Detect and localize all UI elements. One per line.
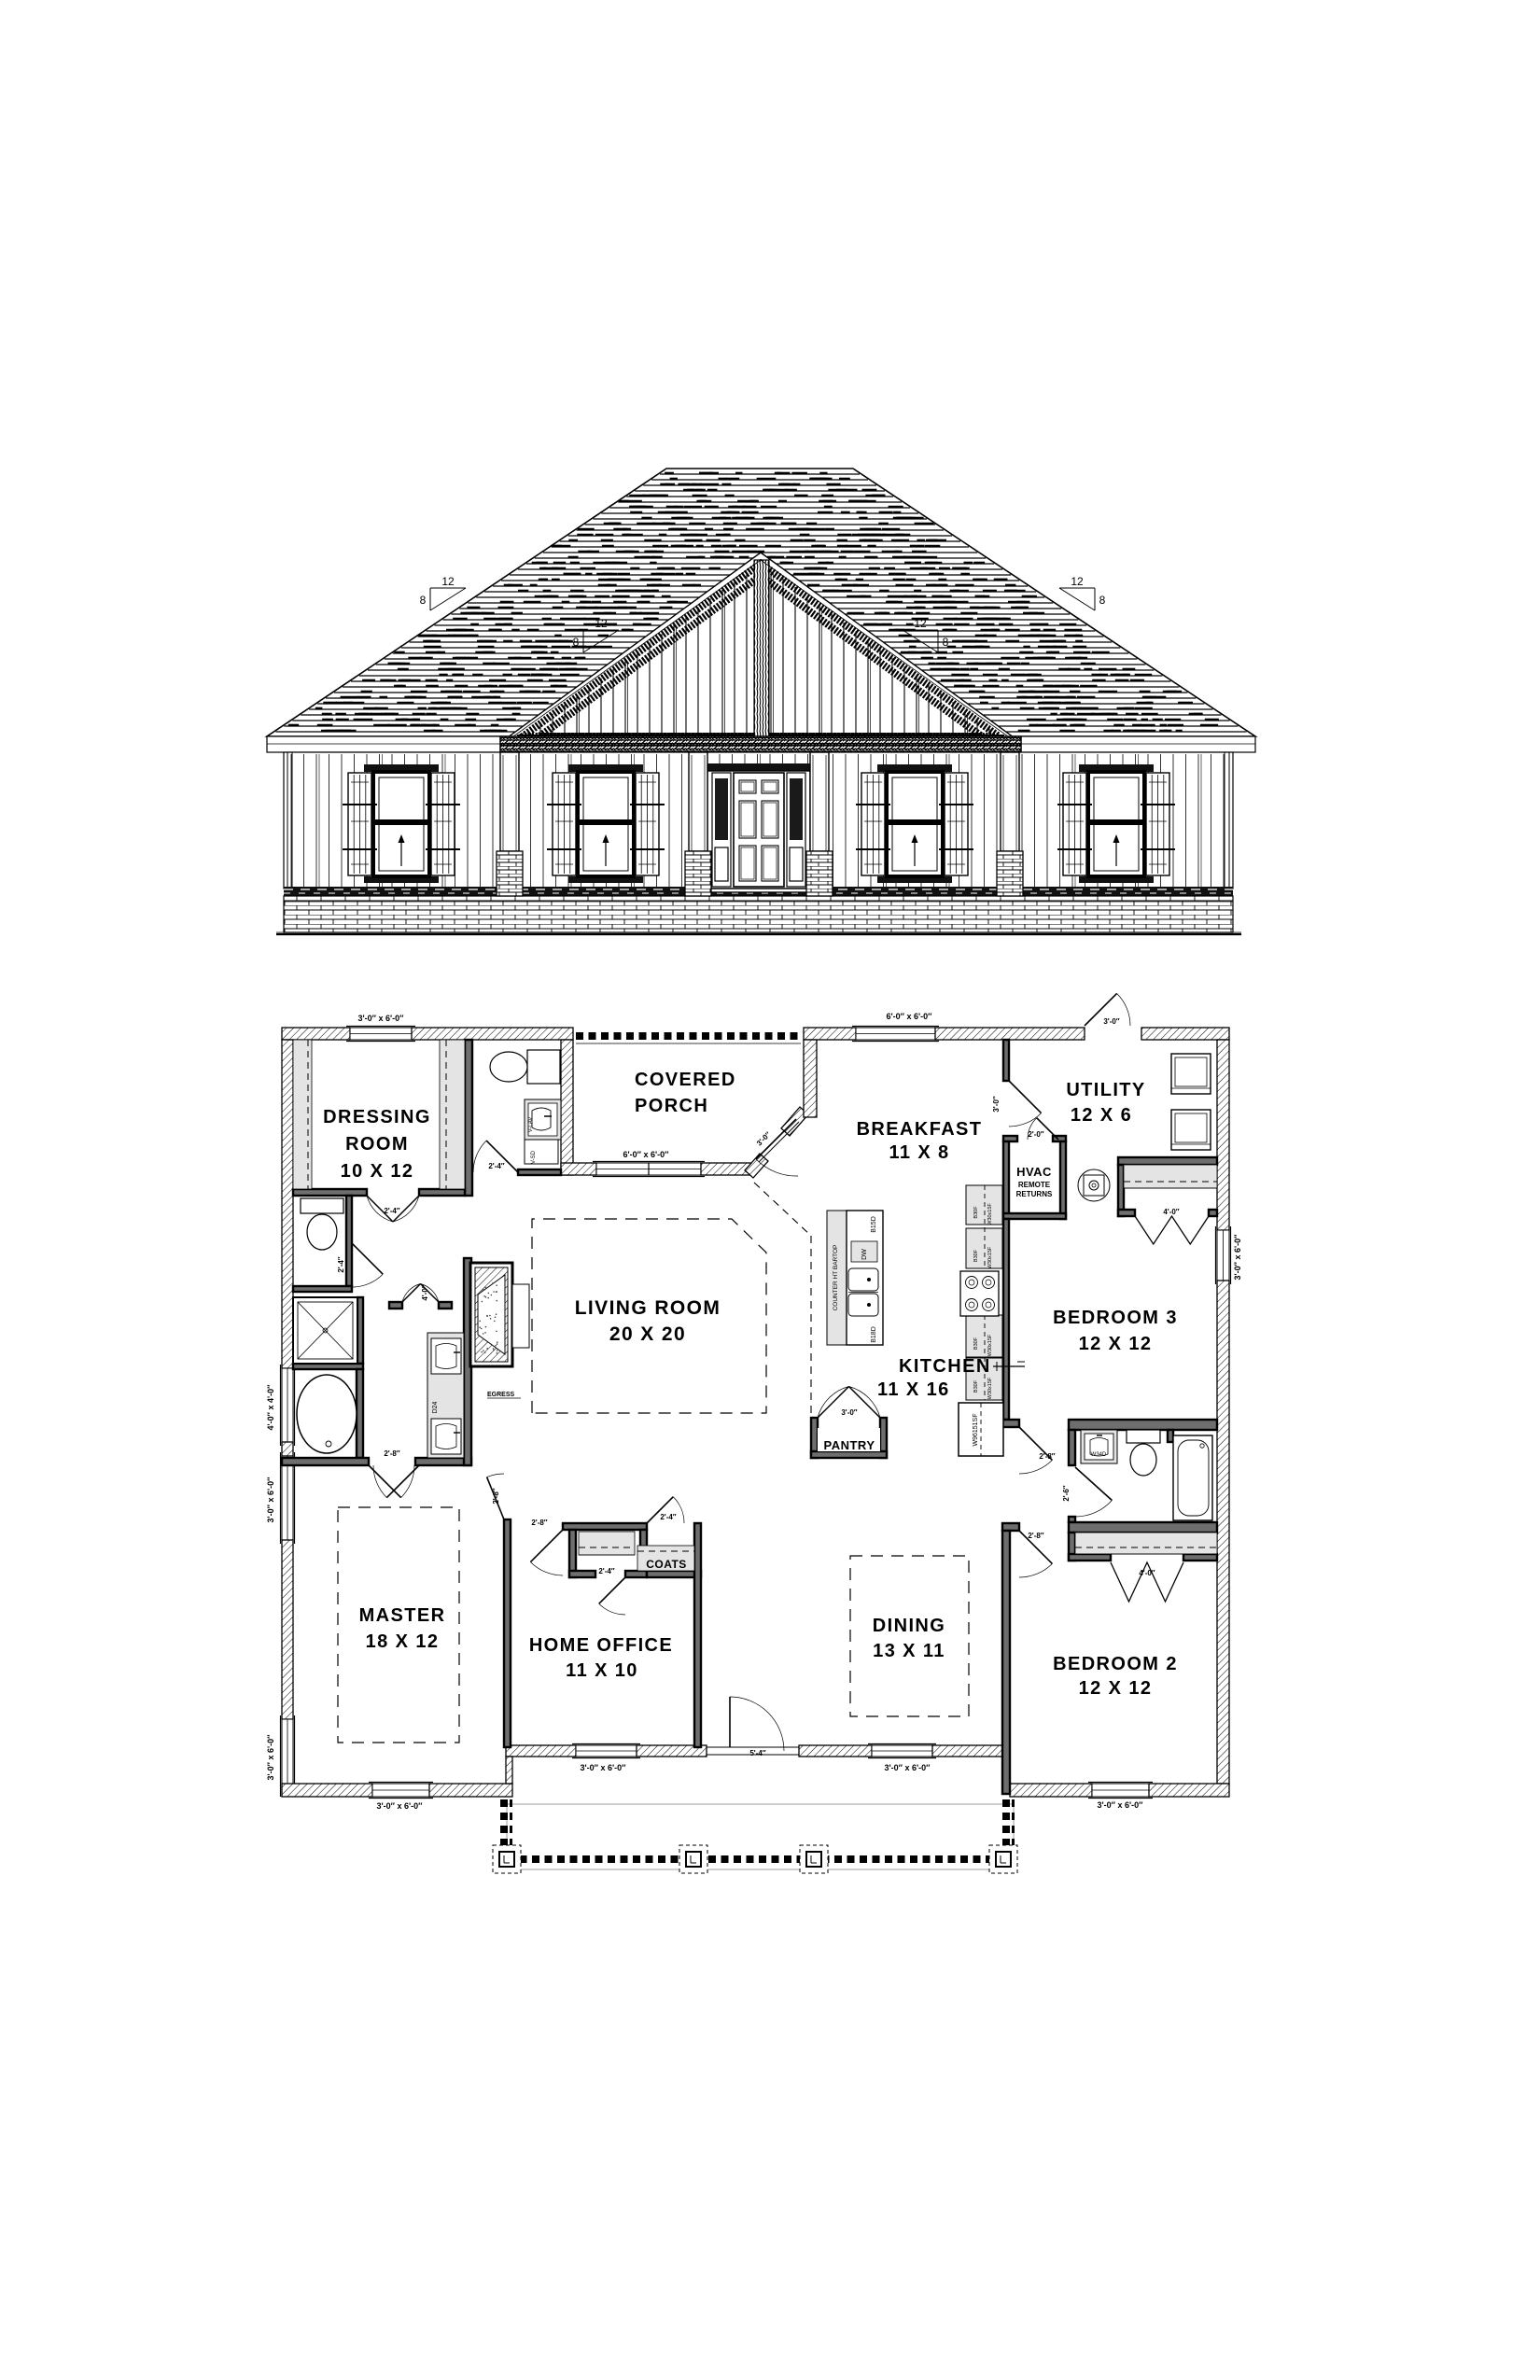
svg-text:12 X 12: 12 X 12 [1079, 1678, 1153, 1699]
svg-text:8: 8 [573, 636, 580, 649]
svg-text:COUNTER HT BARTOP: COUNTER HT BARTOP [833, 1245, 839, 1311]
svg-text:2'-4″: 2'-4″ [384, 1207, 399, 1215]
svg-text:3'-0″ x 6'-0″: 3'-0″ x 6'-0″ [1233, 1234, 1242, 1281]
svg-text:COATS: COATS [646, 1558, 687, 1571]
svg-text:DW: DW [861, 1249, 868, 1260]
svg-text:4'-0″ x 4'-0″: 4'-0″ x 4'-0″ [266, 1384, 275, 1431]
svg-text:8: 8 [943, 636, 949, 649]
svg-text:REMOTE: REMOTE [1018, 1181, 1051, 1189]
svg-text:2'-6″: 2'-6″ [1062, 1485, 1071, 1501]
svg-text:COVERED: COVERED [635, 1070, 736, 1090]
svg-text:MASTER: MASTER [359, 1605, 446, 1626]
svg-text:V-LAV: V-LAV [528, 1117, 534, 1133]
svg-text:W30x15F: W30x15F [987, 1246, 993, 1268]
svg-text:18 X 12: 18 X 12 [366, 1631, 440, 1652]
svg-text:PORCH: PORCH [635, 1096, 708, 1116]
svg-text:PANTRY: PANTRY [824, 1438, 875, 1452]
svg-text:BEDROOM 3: BEDROOM 3 [1053, 1308, 1178, 1328]
svg-text:12: 12 [595, 617, 608, 630]
svg-text:B15D: B15D [871, 1216, 877, 1233]
svg-text:12: 12 [441, 575, 455, 588]
svg-text:RETURNS: RETURNS [1016, 1190, 1053, 1198]
svg-text:W30x15F: W30x15F [987, 1334, 993, 1356]
svg-text:11 X 10: 11 X 10 [566, 1660, 638, 1681]
svg-text:2'-4″: 2'-4″ [660, 1513, 676, 1521]
svg-text:V-SD: V-SD [531, 1150, 537, 1164]
svg-text:5'-4″: 5'-4″ [749, 1749, 765, 1757]
svg-text:W34D: W34D [1091, 1452, 1107, 1458]
svg-text:3'-0″ x 6'-0″: 3'-0″ x 6'-0″ [266, 1477, 275, 1523]
svg-text:4'-0″: 4'-0″ [421, 1284, 429, 1300]
svg-text:12: 12 [1071, 575, 1084, 588]
svg-text:2'-8″: 2'-8″ [1028, 1532, 1043, 1540]
svg-text:20 X 20: 20 X 20 [609, 1323, 686, 1345]
svg-text:D24: D24 [432, 1401, 439, 1413]
svg-text:B30F: B30F [973, 1337, 979, 1350]
svg-text:2'-8″: 2'-8″ [1039, 1452, 1055, 1461]
svg-text:3'-0″ x 6'-0″: 3'-0″ x 6'-0″ [266, 1734, 275, 1781]
svg-text:DRESSING: DRESSING [323, 1107, 431, 1127]
svg-text:LIVING ROOM: LIVING ROOM [575, 1297, 721, 1319]
svg-text:2'-4″: 2'-4″ [337, 1256, 345, 1272]
svg-text:BREAKFAST: BREAKFAST [857, 1119, 983, 1140]
svg-text:12: 12 [914, 617, 927, 630]
svg-text:KITCHEN: KITCHEN [899, 1356, 991, 1377]
svg-text:W30x15F: W30x15F [987, 1203, 993, 1225]
svg-text:11 X 8: 11 X 8 [889, 1142, 949, 1163]
svg-text:13 X 11: 13 X 11 [873, 1641, 945, 1661]
svg-text:B30F: B30F [973, 1206, 979, 1219]
svg-text:3'-0″ x 6'-0″: 3'-0″ x 6'-0″ [1098, 1800, 1144, 1810]
svg-text:B30F: B30F [973, 1249, 979, 1262]
svg-text:DINING: DINING [873, 1616, 945, 1636]
svg-text:W96151SF: W96151SF [973, 1413, 979, 1446]
svg-text:12 X 12: 12 X 12 [1079, 1334, 1153, 1354]
svg-text:11 X 16: 11 X 16 [877, 1379, 950, 1400]
svg-text:EGRESS: EGRESS [487, 1392, 515, 1398]
svg-text:2'-8″: 2'-8″ [384, 1449, 399, 1458]
svg-text:8: 8 [420, 594, 427, 607]
svg-text:2'-4″: 2'-4″ [598, 1567, 614, 1575]
svg-text:3'-0″: 3'-0″ [992, 1096, 1001, 1112]
svg-text:2'-8″: 2'-8″ [492, 1488, 500, 1504]
svg-text:12 X 6: 12 X 6 [1071, 1105, 1132, 1126]
svg-text:B18D: B18D [871, 1326, 877, 1343]
svg-text:HOME OFFICE: HOME OFFICE [529, 1635, 673, 1656]
svg-text:2'-8″: 2'-8″ [531, 1519, 547, 1527]
svg-text:B30F: B30F [973, 1379, 979, 1393]
svg-text:2'-0″: 2'-0″ [1028, 1130, 1043, 1139]
svg-text:3'-0″ x 6'-0″: 3'-0″ x 6'-0″ [885, 1763, 931, 1772]
svg-text:6'-0″ x 6'-0″: 6'-0″ x 6'-0″ [887, 1012, 933, 1021]
svg-text:4'-0″: 4'-0″ [1163, 1208, 1179, 1216]
svg-text:3'-0″ x 6'-0″: 3'-0″ x 6'-0″ [358, 1014, 405, 1023]
svg-text:UTILITY: UTILITY [1066, 1080, 1145, 1100]
svg-text:3'-0″: 3'-0″ [841, 1408, 857, 1417]
svg-text:BEDROOM 2: BEDROOM 2 [1053, 1654, 1178, 1674]
svg-text:W30x15F: W30x15F [987, 1377, 993, 1399]
svg-text:6'-0″ x 6'-0″: 6'-0″ x 6'-0″ [623, 1150, 670, 1159]
svg-text:3'-0″ x 6'-0″: 3'-0″ x 6'-0″ [377, 1801, 424, 1811]
svg-text:8: 8 [1099, 594, 1106, 607]
svg-text:ROOM: ROOM [345, 1134, 409, 1155]
svg-text:10 X 12: 10 X 12 [341, 1161, 414, 1182]
svg-text:HVAC: HVAC [1016, 1165, 1052, 1179]
svg-text:3'-0″ x 6'-0″: 3'-0″ x 6'-0″ [581, 1763, 627, 1772]
svg-text:2'-4″: 2'-4″ [488, 1162, 504, 1170]
svg-text:4'-0″: 4'-0″ [1139, 1569, 1155, 1577]
svg-text:3'-0″: 3'-0″ [1103, 1017, 1119, 1026]
